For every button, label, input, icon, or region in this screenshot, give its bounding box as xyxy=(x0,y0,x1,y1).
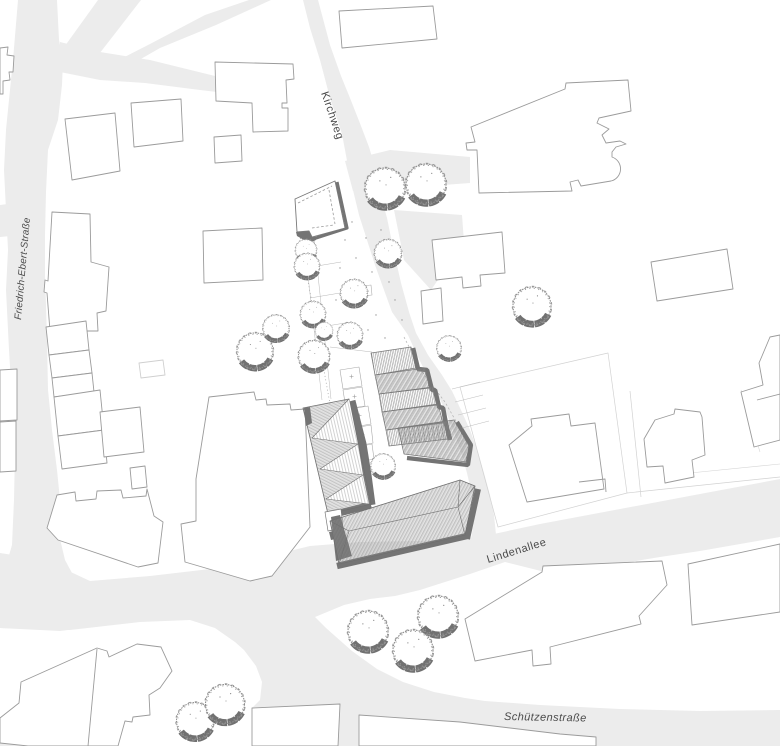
svg-text:Schützenstraße: Schützenstraße xyxy=(504,711,587,724)
